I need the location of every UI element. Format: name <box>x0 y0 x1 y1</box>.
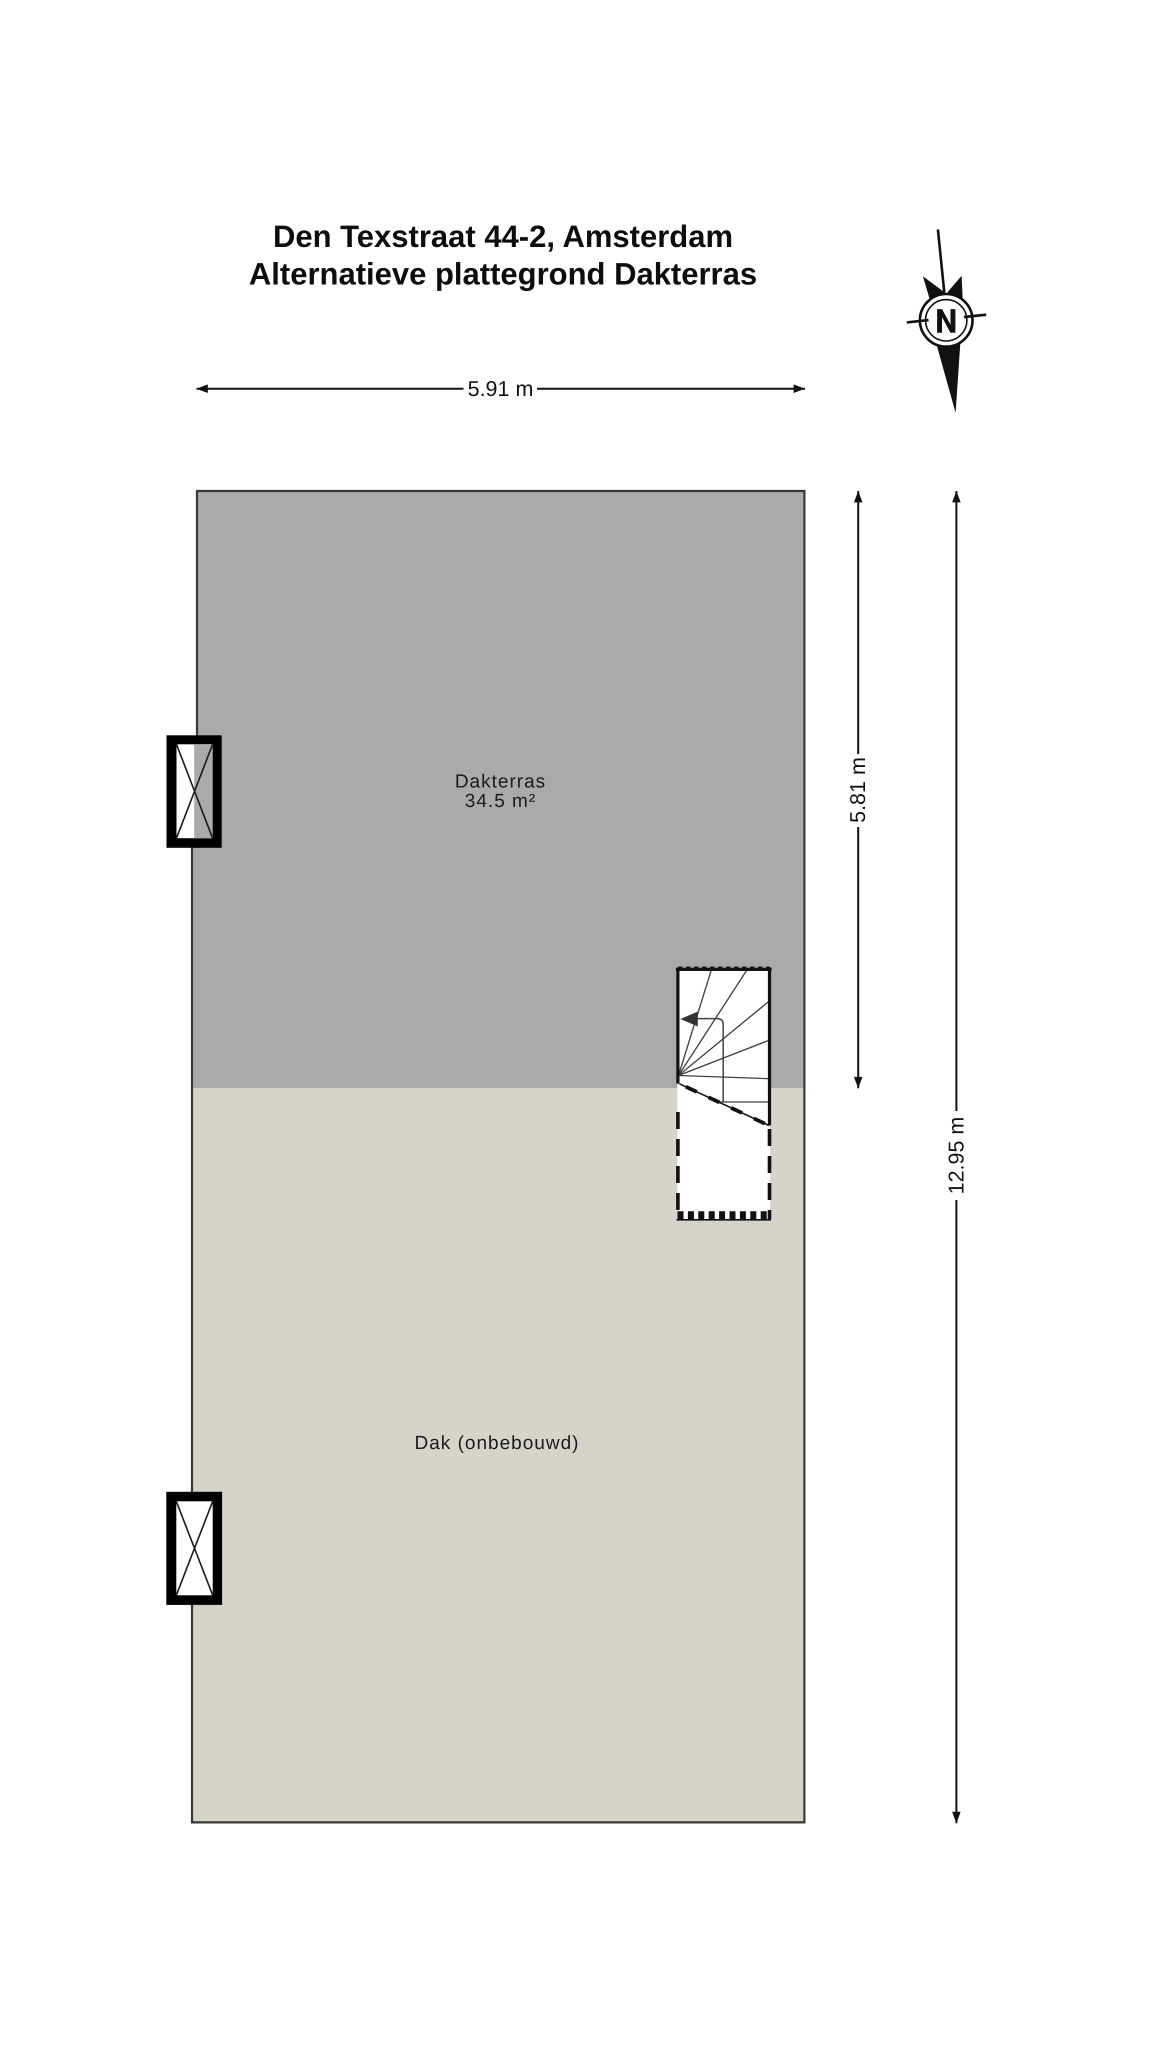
svg-text:Dakterras: Dakterras <box>455 771 546 792</box>
svg-text:5.81 m: 5.81 m <box>846 757 870 823</box>
svg-text:34.5 m²: 34.5 m² <box>465 791 536 812</box>
svg-text:Den Texstraat 44-2, Amsterdam: Den Texstraat 44-2, Amsterdam <box>273 219 733 254</box>
svg-text:12.95 m: 12.95 m <box>944 1117 968 1195</box>
svg-text:Alternatieve plattegrond Dakte: Alternatieve plattegrond Dakterras <box>249 257 757 292</box>
svg-text:5.91 m: 5.91 m <box>468 377 534 401</box>
svg-text:Dak (onbebouwd): Dak (onbebouwd) <box>415 1433 580 1454</box>
